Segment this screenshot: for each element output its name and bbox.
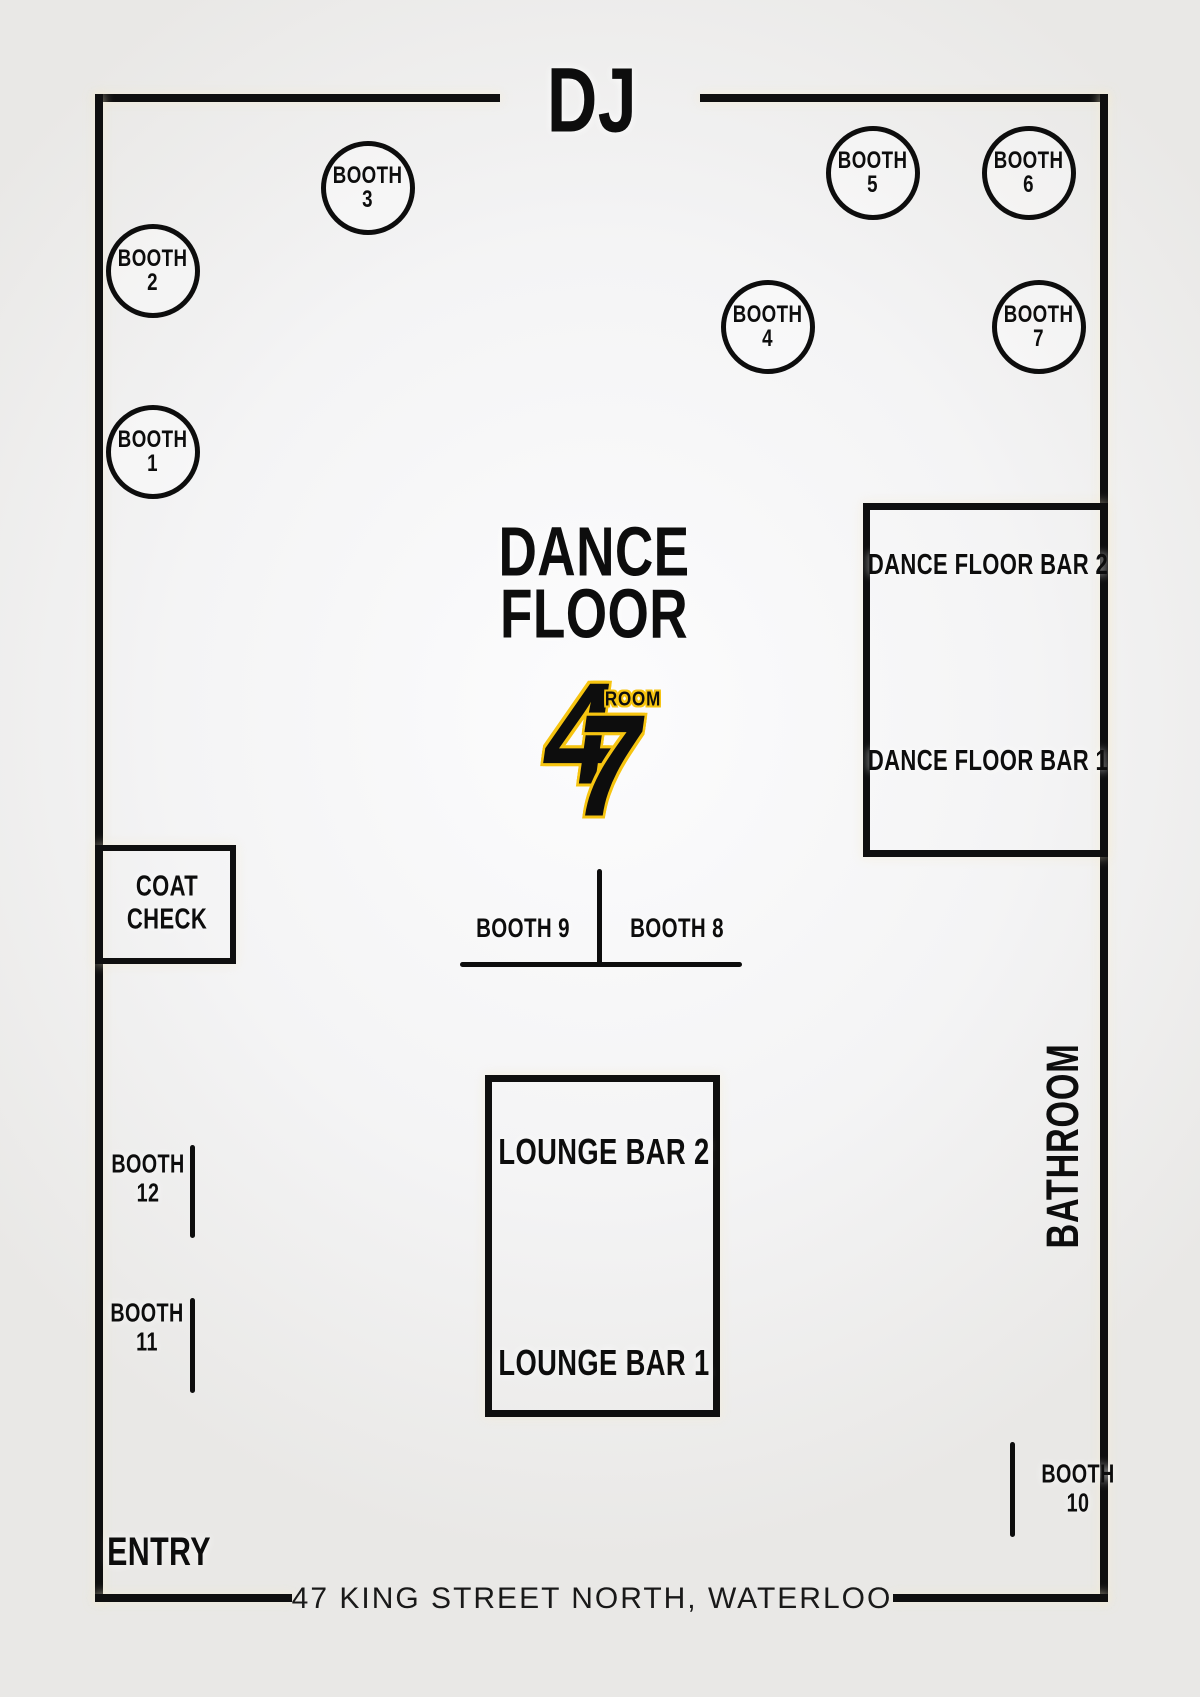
booth-9-divider-vertical — [597, 869, 602, 967]
address-label: 47 KING STREET NORTH, WATERLOO — [292, 1582, 893, 1616]
wall-bottom-left — [95, 1594, 292, 1602]
dance-floor-label: DANCE FLOOR — [498, 521, 689, 644]
dj-label: DJ — [547, 57, 637, 144]
booth-2-marker: BOOTH2 — [106, 224, 200, 318]
booth-9-label: BOOTH 9 — [476, 916, 570, 942]
dance-floor-bar-1-label: DANCE FLOOR BAR 1 — [868, 748, 1108, 776]
wall-bottom-right — [893, 1594, 1108, 1602]
bathroom-label: BATHROOM — [1037, 1044, 1089, 1249]
booth-5-marker: BOOTH5 — [826, 126, 920, 220]
booth-1-marker: BOOTH1 — [106, 405, 200, 499]
lounge-bar-1-label: LOUNGE BAR 1 — [498, 1346, 709, 1380]
booth-4-marker: BOOTH4 — [721, 280, 815, 374]
wall-top-left — [95, 94, 500, 102]
booth-11-label: BOOTH 11 — [110, 1298, 183, 1355]
booth-10-label: BOOTH 10 — [1041, 1459, 1114, 1516]
coat-check-label: COAT CHECK — [127, 871, 207, 938]
booth-8-label: BOOTH 8 — [630, 916, 724, 942]
booth-6-marker: BOOTH6 — [982, 126, 1076, 220]
booth-9-divider-horizontal — [460, 962, 742, 967]
wall-top-right — [700, 94, 1108, 102]
booth-12-line — [190, 1145, 195, 1238]
booth-10-line — [1010, 1442, 1015, 1537]
floor-plan: DJ BOOTH1 BOOTH2 BOOTH3 BOOTH4 BOOTH5 BO… — [0, 0, 1200, 1697]
dance-floor-bar-2-label: DANCE FLOOR BAR 2 — [868, 552, 1108, 580]
booth-11-line — [190, 1298, 195, 1393]
entry-label: ENTRY — [107, 1533, 211, 1571]
lounge-bar-2-label: LOUNGE BAR 2 — [498, 1135, 709, 1169]
booth-7-marker: BOOTH7 — [992, 280, 1086, 374]
booth-12-label: BOOTH 12 — [111, 1149, 184, 1206]
logo-room-label: ROOM — [605, 689, 661, 712]
booth-3-marker: BOOTH3 — [321, 141, 415, 235]
